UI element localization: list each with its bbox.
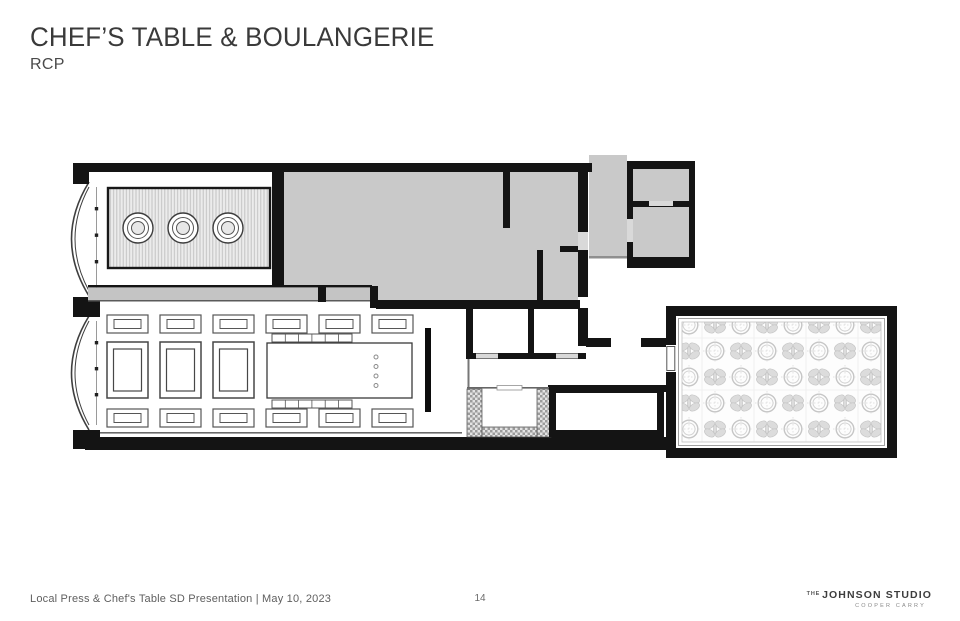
coffer-row-bottom — [107, 409, 413, 427]
storefront-glazing-upper — [72, 182, 99, 296]
pendant-light — [213, 213, 243, 243]
kitchen-area — [284, 172, 578, 301]
logo-name: JOHNSON STUDIO — [822, 589, 932, 601]
feature-wall — [425, 328, 431, 412]
chefs-table — [267, 328, 431, 412]
studio-logo: THEJOHNSON STUDIO COOPER CARRY — [807, 589, 932, 610]
shaft-room — [467, 386, 551, 438]
coffer-row-top — [107, 315, 413, 333]
pendant-light — [123, 213, 153, 243]
storage-rooms — [627, 161, 695, 268]
logo-subname: COOPER CARRY — [807, 603, 932, 609]
boulangerie-ceiling-panel — [108, 188, 270, 268]
private-dining-room — [666, 306, 897, 458]
storefront-glazing-lower — [72, 316, 99, 430]
logo-prefix: THE — [807, 591, 820, 597]
coffer-row-middle — [107, 342, 254, 398]
floor-plan — [0, 0, 960, 621]
presentation-slide: CHEF’S TABLE & BOULANGERIE RCP — [0, 0, 960, 621]
ornate-ceiling — [682, 322, 881, 442]
back-room — [549, 386, 664, 437]
logo-name-line: THEJOHNSON STUDIO — [807, 589, 932, 601]
entry-door — [666, 345, 676, 372]
service-corridor — [589, 155, 627, 259]
pendant-light — [168, 213, 198, 243]
